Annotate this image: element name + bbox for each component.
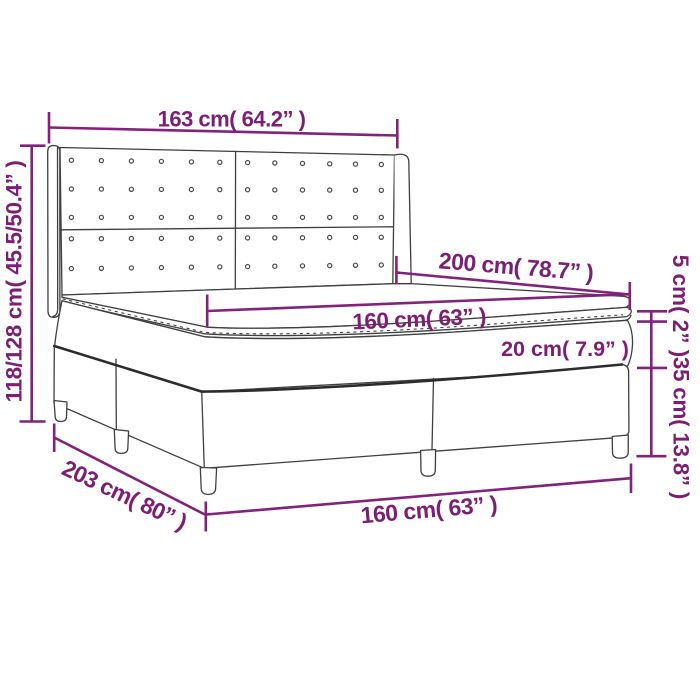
svg-text:20 cm( 7.9” ): 20 cm( 7.9” ) (501, 337, 629, 361)
svg-text:163 cm( 64.2” ): 163 cm( 64.2” ) (158, 107, 306, 132)
svg-text:160 cm( 63” ): 160 cm( 63” ) (352, 303, 487, 334)
svg-text:5 cm( 2” ): 5 cm( 2” ) (668, 255, 693, 358)
svg-text:200 cm( 78.7” ): 200 cm( 78.7” ) (438, 247, 594, 285)
svg-text:118/128 cm( 45.5/50.4” ): 118/128 cm( 45.5/50.4” ) (2, 161, 27, 403)
svg-text:35 cm( 13.8” ): 35 cm( 13.8” ) (669, 357, 694, 499)
svg-text:203 cm( 80” ): 203 cm( 80” ) (58, 455, 191, 535)
svg-text:160 cm( 63” ): 160 cm( 63” ) (360, 491, 498, 529)
